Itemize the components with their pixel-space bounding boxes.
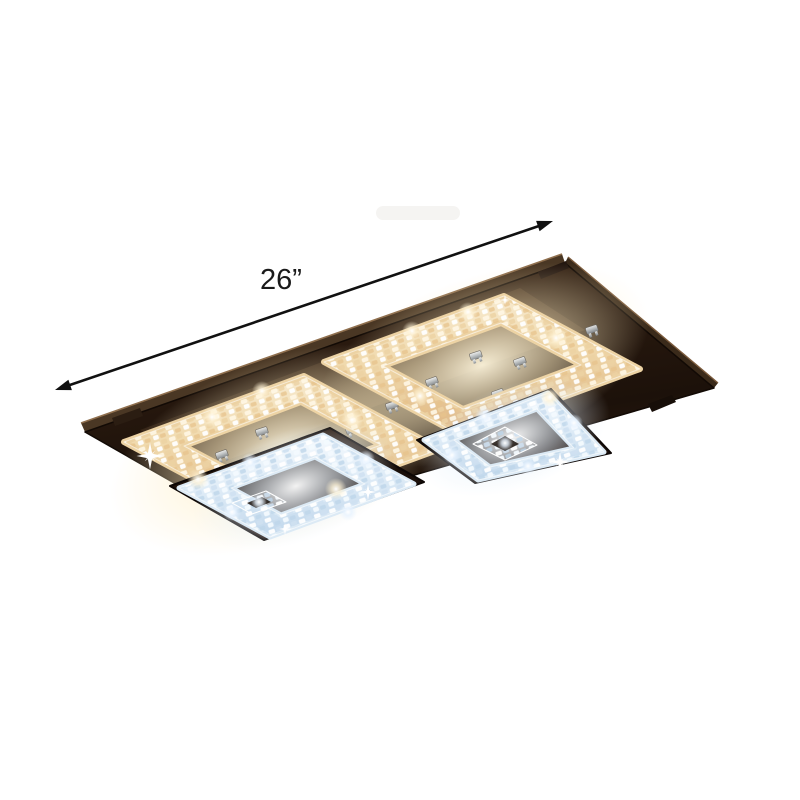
fixture-illustration: 26” (0, 0, 800, 800)
product-photo: 26” (0, 0, 800, 800)
dimension-label: 26” (260, 264, 302, 296)
reflection-artifact (376, 206, 460, 220)
ceiling-light-fixture (81, 206, 718, 598)
dimension-arrowhead-right-icon (536, 221, 553, 231)
dimension-arrowhead-left-icon (55, 380, 72, 390)
